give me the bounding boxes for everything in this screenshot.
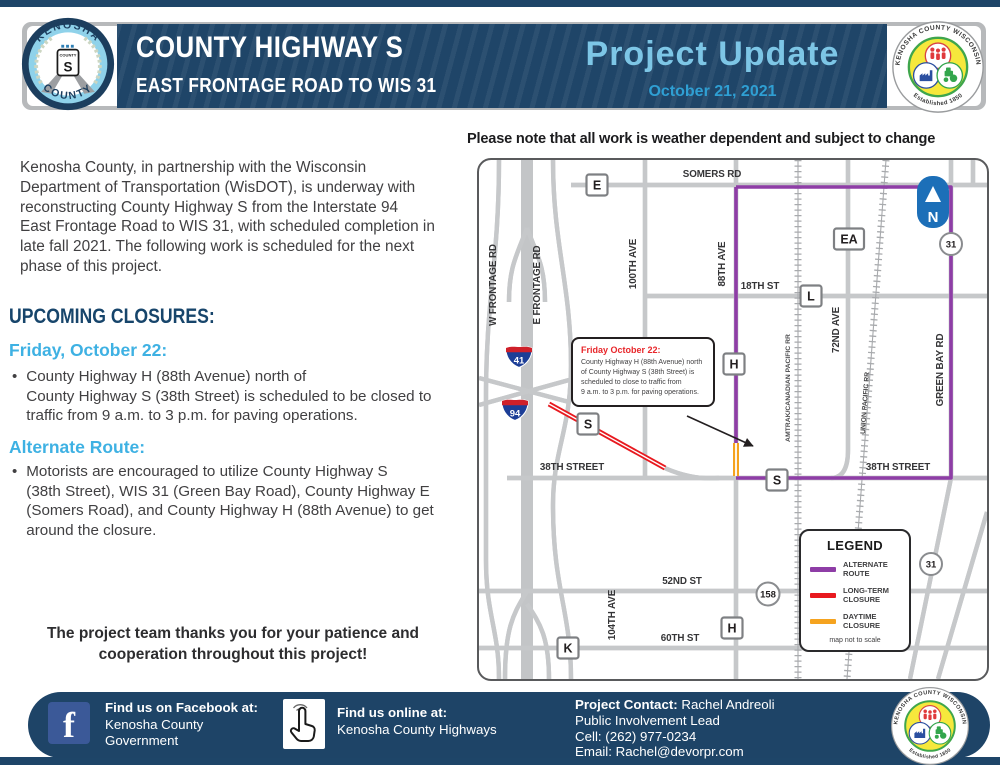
callout-body: County Highway H (88th Avenue) north of …: [581, 358, 705, 399]
contact-role: Public Involvement Lead: [575, 713, 775, 729]
top-border-strip: [0, 0, 1000, 7]
contact-email: Email: Rachel@devorpr.com: [575, 744, 775, 760]
project-map: E L EA H S S H K: [477, 158, 989, 681]
north-arrow: N: [917, 176, 949, 228]
map-legend: LEGEND ALTERNATE ROUTE LONG-TERM CLOSURE…: [799, 529, 911, 652]
label-18th-st: 18TH ST: [741, 281, 780, 292]
contact-line1: Project Contact: Rachel Andreoli: [575, 697, 775, 713]
svg-text:H: H: [727, 622, 736, 636]
shield-county-ea: EA: [834, 229, 864, 250]
alternate-route-swatch: [810, 567, 836, 572]
svg-text:S: S: [584, 418, 592, 432]
alternate-bullet: • Motorists are encouraged to utilize Co…: [12, 462, 476, 540]
project-update-date: October 21, 2021: [555, 83, 870, 101]
svg-text:158: 158: [760, 590, 776, 601]
bottom-border-strip: [0, 757, 1000, 765]
shield-wis-31-bottom: 31: [920, 553, 942, 575]
kenosha-county-highway-logo: [20, 16, 116, 112]
legend-item-long-term-closure: LONG-TERM CLOSURE: [810, 586, 900, 605]
upcoming-closures-heading: UPCOMING CLOSURES:: [9, 305, 215, 329]
contact-cell: Cell: (262) 977-0234: [575, 729, 775, 745]
daytime-closure-swatch: [810, 619, 836, 624]
svg-text:H: H: [729, 358, 738, 372]
long-term-closure-swatch: [810, 593, 836, 598]
shield-county-e: E: [587, 175, 608, 196]
weather-note: Please note that all work is weather dep…: [467, 131, 992, 147]
shield-county-s-closure: S: [578, 414, 599, 435]
label-88th-ave: 88TH AVE: [717, 241, 728, 286]
label-52nd-st: 52ND ST: [662, 576, 702, 587]
facebook-info: Find us on Facebook at: Kenosha County G…: [105, 700, 258, 750]
page-title: COUNTY HIGHWAY S: [136, 31, 403, 65]
svg-text:31: 31: [926, 560, 937, 571]
page-subtitle: EAST FRONTAGE ROAD TO WIS 31: [136, 75, 436, 98]
legend-label: LONG-TERM CLOSURE: [843, 586, 889, 605]
svg-text:41: 41: [514, 356, 525, 367]
project-update-label: Project Update: [555, 35, 870, 74]
label-100th-ave: 100TH AVE: [628, 238, 639, 289]
svg-text:EA: EA: [840, 233, 857, 247]
svg-text:K: K: [563, 642, 572, 656]
svg-text:31: 31: [946, 240, 957, 251]
svg-text:N: N: [928, 209, 939, 226]
legend-item-alternate-route: ALTERNATE ROUTE: [810, 560, 900, 579]
bullet-glyph: •: [12, 462, 17, 540]
label-union-pacific-rr: UNION PACIFIC RR: [860, 372, 871, 435]
online-heading: Find us online at:: [337, 705, 497, 722]
shield-wis-158: 158: [757, 583, 780, 606]
closure-date-heading: Friday, October 22:: [9, 340, 167, 361]
alternate-route-heading: Alternate Route:: [9, 437, 145, 458]
online-info: Find us online at: Kenosha County Highwa…: [337, 705, 497, 738]
legend-item-daytime-closure: DAYTIME CLOSURE: [810, 612, 900, 631]
callout-heading: Friday October 22:: [581, 345, 705, 355]
shield-county-k: K: [558, 638, 579, 659]
label-38th-street-left: 38TH STREET: [540, 462, 604, 473]
facebook-icon: f: [48, 702, 90, 744]
svg-text:E: E: [593, 179, 601, 193]
facebook-line1: Kenosha County: [105, 717, 258, 734]
svg-text:94: 94: [510, 409, 521, 420]
contact-name: Rachel Andreoli: [678, 697, 775, 712]
legend-note: map not to scale: [810, 637, 900, 644]
project-contact: Project Contact: Rachel Andreoli Public …: [575, 697, 775, 760]
label-104th-ave: 104TH AVE: [607, 589, 618, 640]
label-w-frontage: W FRONTAGE RD: [488, 244, 499, 326]
contact-label: Project Contact:: [575, 697, 678, 712]
shield-county-h-top: H: [724, 354, 745, 375]
callout-arrow: [687, 416, 753, 446]
bullet-glyph: •: [12, 367, 17, 426]
shield-county-s-38th: S: [767, 470, 788, 491]
svg-text:L: L: [807, 290, 815, 304]
label-green-bay-rd: GREEN BAY RD: [935, 334, 946, 407]
label-60th-st: 60TH ST: [661, 633, 700, 644]
long-term-closure-center: [549, 404, 665, 468]
svg-text:S: S: [773, 474, 781, 488]
click-hand-icon: [283, 699, 325, 749]
online-line: Kenosha County Highways: [337, 722, 497, 739]
label-amtrak-rr: AMTRAK/CANADIAN PACIFIC RR: [785, 334, 792, 442]
label-somers-rd: SOMERS RD: [683, 169, 741, 180]
legend-label: ALTERNATE ROUTE: [843, 560, 888, 579]
closure-callout: Friday October 22: County Highway H (88t…: [571, 337, 715, 407]
label-38th-street-right: 38TH STREET: [866, 462, 930, 473]
label-72nd-ave: 72ND AVE: [831, 306, 842, 353]
label-e-frontage: E FRONTAGE RD: [532, 245, 543, 324]
footer-bar: f Find us on Facebook at: Kenosha County…: [28, 692, 990, 758]
legend-title: LEGEND: [810, 538, 900, 553]
thanks-message: The project team thanks you for your pat…: [28, 623, 438, 665]
alternate-bullet-text: Motorists are encouraged to utilize Coun…: [26, 462, 476, 540]
facebook-line2: Government: [105, 733, 258, 750]
facebook-heading: Find us on Facebook at:: [105, 700, 258, 717]
intro-paragraph: Kenosha County, in partnership with the …: [20, 158, 470, 277]
kenosha-county-seal: [891, 20, 985, 114]
shield-county-h-bottom: H: [722, 618, 743, 639]
closure-bullet-text: County Highway H (88th Avenue) north of …: [26, 367, 476, 426]
shield-wis-31-top: 31: [940, 233, 962, 255]
shield-county-l: L: [801, 286, 822, 307]
closure-bullet: • County Highway H (88th Avenue) north o…: [12, 367, 476, 426]
legend-label: DAYTIME CLOSURE: [843, 612, 880, 631]
flyer-page: { "header": { "title": "COUNTY HIGHWAY S…: [0, 0, 1000, 765]
kenosha-county-seal-footer: [890, 686, 970, 766]
